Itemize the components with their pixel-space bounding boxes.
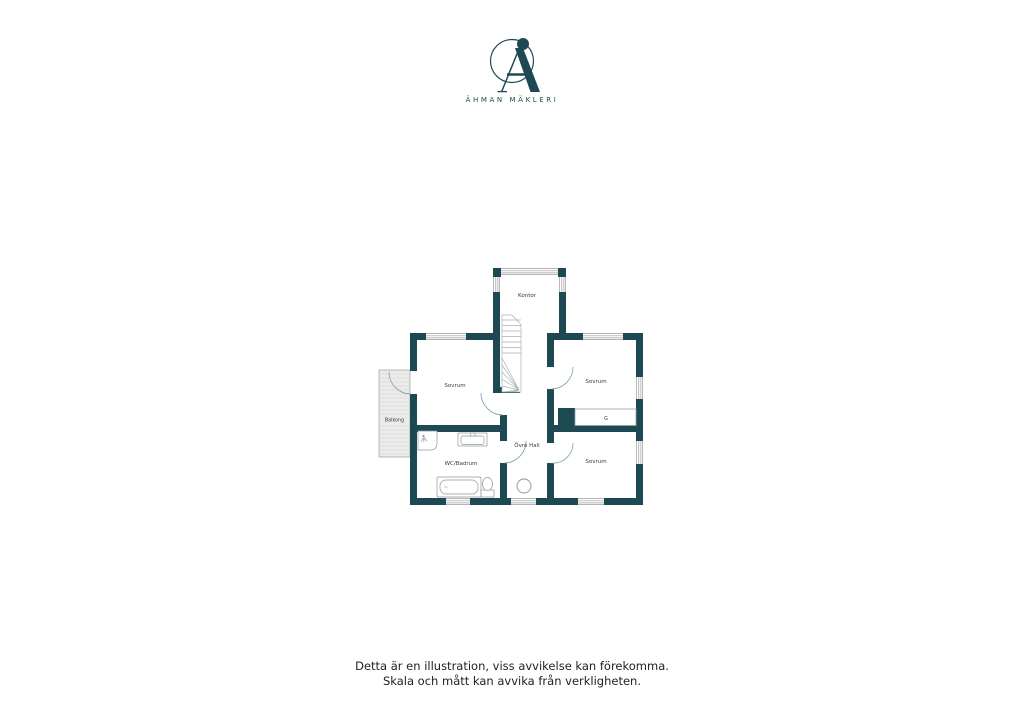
window (583, 334, 623, 340)
sink (458, 433, 487, 446)
floor-plan: Kontor Sovrum Sovrum Sovrum WC/Badrum Öv… (375, 260, 655, 512)
staircase (502, 315, 521, 392)
window (446, 499, 470, 505)
toilet (481, 478, 494, 498)
room-label-sovrum-left: Sovrum (444, 383, 465, 389)
room-label-ovre-hall: Övre Hall (514, 442, 540, 449)
window (494, 277, 500, 292)
chimney-circle (517, 479, 531, 493)
sovrum-ne-door-arc (551, 367, 573, 389)
window (637, 441, 643, 464)
room-label-wc-badrum: WC/Badrum (445, 461, 478, 467)
sovrum-se-door-arc (551, 443, 573, 463)
page: { "brand": { "name": "ÄHMAN MÄKLERI", "c… (0, 0, 1024, 724)
sovrum-left-door-arc (481, 393, 503, 415)
brand-name: ÄHMAN MÄKLERI (0, 96, 1024, 104)
disclaimer: Detta är en illustration, viss avvikelse… (0, 659, 1024, 688)
balcony (379, 370, 410, 457)
window (578, 499, 604, 505)
room-label-sovrum-bottom-right: Sovrum (585, 459, 606, 465)
window (426, 334, 466, 340)
disclaimer-line-1: Detta är en illustration, viss avvikelse… (0, 659, 1024, 674)
ahman-makleri-logo-icon (467, 28, 557, 98)
bathtub (437, 477, 481, 497)
room-label-sovrum-top-right: Sovrum (585, 379, 606, 385)
window (501, 269, 558, 275)
window (637, 377, 643, 399)
room-label-kontor: Kontor (518, 293, 537, 299)
room-label-balkong: Balkong (385, 418, 404, 424)
disclaimer-line-2: Skala och mått kan avvika från verklighe… (0, 674, 1024, 689)
room-label-garderob: G (604, 416, 608, 422)
window (560, 277, 566, 292)
window (511, 499, 536, 505)
shower (418, 431, 437, 450)
